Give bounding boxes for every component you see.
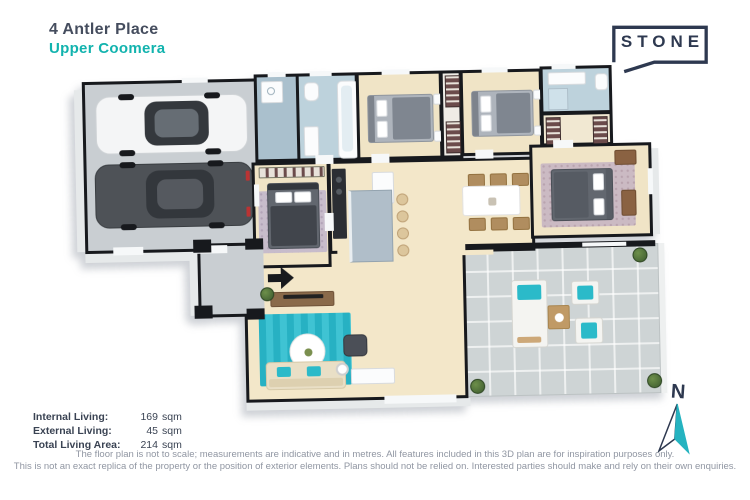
- car-wheel: [119, 162, 135, 168]
- tail-light: [246, 207, 250, 217]
- master-window: [648, 168, 654, 194]
- area-row: External Living: 45 sqm: [33, 424, 182, 438]
- sofa-cushion: [277, 367, 291, 377]
- entry-arrow-tip-icon: [281, 267, 294, 289]
- bed-pillow: [377, 121, 388, 138]
- disclaimer-line-2: This is not an exact replica of the prop…: [0, 461, 750, 473]
- dining-table: [462, 185, 521, 216]
- sofa-backrest: [269, 378, 343, 388]
- stone-logo-text: STONE: [611, 32, 709, 52]
- bed-pillow: [593, 173, 604, 190]
- area-value: 45: [136, 424, 158, 438]
- alfresco-patio: [462, 243, 661, 397]
- outdoor-coffee-table: [548, 305, 570, 329]
- bed-blanket: [554, 172, 589, 219]
- garage-internal-door: [254, 184, 259, 206]
- bedroom-2: [356, 71, 444, 161]
- garage-window: [182, 77, 208, 83]
- bathtub-inner: [341, 85, 353, 151]
- bathroom-window: [310, 71, 332, 76]
- floor-plan: [81, 56, 668, 413]
- car-wheel: [205, 148, 221, 154]
- master-ottoman: [614, 150, 636, 165]
- bed-pillow: [294, 191, 311, 202]
- garage: [82, 78, 261, 254]
- car-wheel: [207, 160, 223, 166]
- sofa: [266, 361, 347, 391]
- bed-pillow: [480, 96, 491, 113]
- bedroom-4: [251, 161, 331, 269]
- porch-pillar: [245, 238, 263, 249]
- bed-pillow: [275, 192, 292, 203]
- master-door: [553, 140, 573, 148]
- garage-door-panel: [113, 247, 143, 256]
- outdoor-sofa: [511, 279, 548, 348]
- outdoor-chair-2: [575, 317, 604, 344]
- porch-pillar: [247, 308, 265, 319]
- dining-chair: [491, 217, 508, 230]
- outdoor-chair-2-cushion: [581, 322, 597, 338]
- potted-plant-icon: [632, 247, 647, 262]
- bedroom-2-window: [382, 69, 410, 75]
- bed-blanket: [392, 97, 431, 140]
- dining-chair: [513, 217, 530, 230]
- outdoor-table-tray: [555, 313, 564, 322]
- bed-pillow: [481, 115, 492, 132]
- master-bedroom: [529, 142, 653, 239]
- bedroom-4-bed: [267, 182, 320, 249]
- car-wheel: [209, 222, 225, 228]
- dark-car-glass: [157, 179, 204, 210]
- area-label: Internal Living:: [33, 410, 136, 424]
- bathroom-door: [315, 155, 333, 164]
- tv: [283, 294, 323, 299]
- kitchen-island: [348, 190, 393, 263]
- double-bed: [471, 90, 534, 137]
- bed-headboard: [368, 96, 375, 142]
- dark-car: [94, 162, 253, 229]
- walk-in-robe: [540, 111, 613, 147]
- cooktop-burner: [336, 189, 342, 195]
- outdoor-sofa-cushion: [517, 285, 541, 300]
- ensuite-vanity: [548, 72, 586, 86]
- bathroom: [296, 72, 360, 161]
- north-label: N: [647, 380, 708, 404]
- wardrobe-unit: [445, 75, 461, 107]
- car-wheel: [204, 92, 220, 98]
- bed-headboard: [606, 169, 613, 219]
- armchair: [343, 334, 367, 356]
- area-summary: Internal Living: 169 sqm External Living…: [33, 410, 182, 452]
- outdoor-chair-1-cushion: [577, 285, 593, 299]
- white-car-glass: [154, 109, 199, 138]
- car-wheel: [119, 150, 135, 156]
- toilet: [595, 73, 608, 90]
- disclaimer: The floor plan is not to scale; measurem…: [0, 449, 750, 472]
- bed-headboard: [472, 92, 479, 136]
- ensuite-window: [551, 64, 575, 70]
- sofa-cushion: [307, 366, 321, 376]
- cooktop-burner: [336, 177, 342, 183]
- bed-headboard: [268, 183, 318, 190]
- area-unit: sqm: [162, 410, 182, 424]
- potted-plant-icon: [470, 379, 485, 394]
- washing-machine: [261, 81, 283, 103]
- bedroom-3: [460, 68, 544, 156]
- toilet: [304, 82, 319, 101]
- kitchen-counter: [332, 169, 347, 239]
- laundry: [254, 74, 302, 163]
- property-suburb: Upper Coomera: [49, 40, 165, 57]
- outdoor-sofa-base: [517, 337, 541, 344]
- porch-pillar: [193, 239, 211, 252]
- bedroom-3-window: [482, 67, 508, 73]
- area-row: Internal Living: 169 sqm: [33, 410, 182, 424]
- double-bed: [367, 94, 434, 143]
- bed-blanket: [270, 205, 317, 246]
- bed-pillow: [376, 100, 387, 117]
- entry-arrow-icon: [268, 274, 281, 282]
- bedroom-4-robe: [259, 166, 325, 178]
- table-centerpiece: [488, 197, 496, 205]
- bedroom-4-door: [325, 213, 334, 231]
- laundry-door: [268, 72, 286, 77]
- wardrobe-unit: [446, 121, 462, 153]
- master-drawers: [621, 190, 637, 216]
- property-address: 4 Antler Place: [49, 21, 158, 39]
- tv-console: [270, 291, 334, 307]
- car-wheel: [118, 94, 134, 100]
- wardrobe-unit: [593, 116, 609, 144]
- dining-chair: [469, 218, 486, 231]
- white-car: [95, 94, 248, 155]
- area-value: 169: [136, 410, 158, 424]
- master-bed: [551, 168, 614, 221]
- area-label: External Living:: [33, 424, 136, 438]
- bed-pillow: [593, 198, 604, 215]
- sideboard: [351, 368, 395, 385]
- dark-car-roof: [146, 169, 215, 218]
- shower: [548, 88, 568, 110]
- washer-drum: [267, 87, 275, 95]
- ensuite: [540, 65, 613, 114]
- area-unit: sqm: [162, 424, 182, 438]
- table-plant-icon: [304, 348, 312, 356]
- sliding-door: [384, 394, 456, 404]
- bed-blanket: [496, 93, 531, 134]
- outdoor-chair-1: [571, 280, 599, 305]
- porch-pillar: [194, 305, 212, 318]
- bedroom-3-door: [475, 150, 493, 159]
- bathroom-vanity: [304, 126, 320, 156]
- white-car-roof: [144, 100, 209, 145]
- car-wheel: [121, 224, 137, 230]
- tail-light: [246, 171, 250, 181]
- disclaimer-line-1: The floor plan is not to scale; measurem…: [0, 449, 750, 461]
- bedroom-2-door: [371, 154, 389, 163]
- floorplan-page: 4 Antler Place Upper Coomera STONE: [0, 0, 750, 500]
